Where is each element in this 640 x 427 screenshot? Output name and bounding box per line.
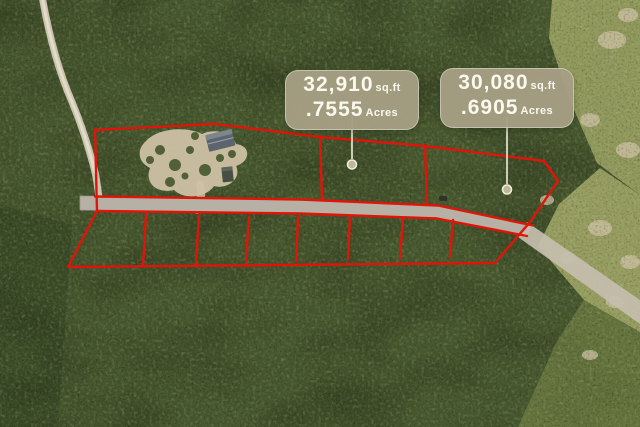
- lot-1-sqft-value: 32,910: [303, 73, 373, 96]
- lot-2-sqft-unit: sq.ft: [531, 80, 556, 92]
- aerial-scene: [0, 0, 640, 427]
- lot-size-label-1: 32,910sq.ft .7555Acres: [285, 70, 419, 130]
- listing-aerial-photo: 32,910sq.ft .7555Acres 30,080sq.ft .6905…: [0, 0, 640, 427]
- lot-2-sqft: 30,080sq.ft: [441, 72, 573, 97]
- lot-size-label-2: 30,080sq.ft .6905Acres: [440, 68, 574, 128]
- lot-2-acres-value: .6905: [461, 96, 519, 119]
- lot-2-acres: .6905Acres: [441, 97, 573, 122]
- leader-marker-right: [503, 185, 512, 194]
- lot-2-acres-unit: Acres: [520, 105, 553, 117]
- lot-2-sqft-value: 30,080: [458, 71, 528, 94]
- lot-1-sqft: 32,910sq.ft: [286, 74, 418, 99]
- lot-1-acres-unit: Acres: [365, 107, 398, 119]
- lot-1-acres: .7555Acres: [286, 99, 418, 124]
- car: [439, 196, 447, 202]
- lot-1-sqft-unit: sq.ft: [376, 82, 401, 94]
- shed: [221, 166, 234, 182]
- leader-marker-left: [348, 160, 357, 169]
- lot-1-acres-value: .7555: [306, 98, 364, 121]
